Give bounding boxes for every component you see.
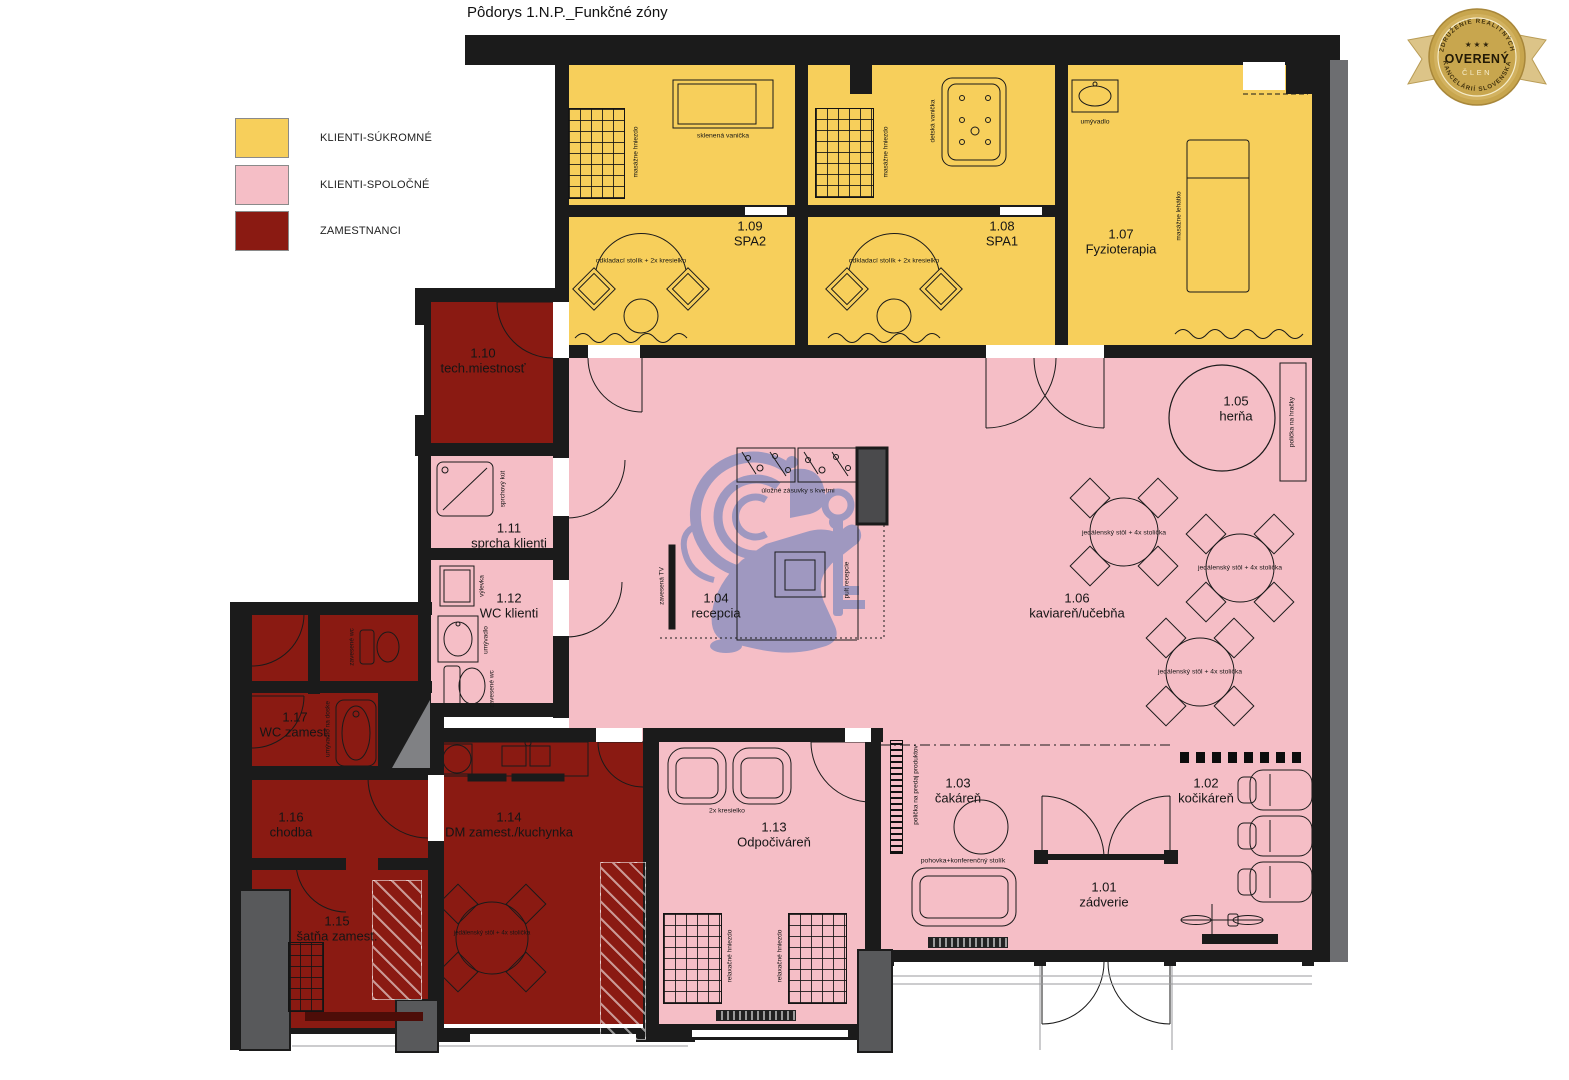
room-label-odpocivaren: 1.13Odpočiváreň — [737, 821, 811, 850]
room-label-wc-zamest: 1.17WC zamest. — [260, 711, 331, 740]
floor-plan-page: Pôdorys 1.N.P._Funkčné zóny KLIENTI-SÚKR… — [0, 0, 1569, 1080]
annotation-pult-recepcie: pult recepcie — [844, 562, 851, 599]
room-name: herňa — [1219, 409, 1252, 424]
room-number: 1.04 — [691, 592, 740, 607]
wardrobe-kitchen — [600, 862, 646, 1040]
relax-nest-grid-1 — [663, 913, 722, 1004]
annotation-zavesene-wc-klienti: zavesené wc — [489, 670, 496, 708]
room-label-herna: 1.05herňa — [1219, 395, 1252, 424]
wardrobe-satna — [372, 880, 422, 1000]
room-name: SPA2 — [734, 234, 766, 249]
annotation-relaxacne-hniezdo-2: relaxačné hniezdo — [777, 930, 784, 983]
room-number: 1.07 — [1086, 228, 1157, 243]
annotation-2x-kresielko: 2x kresielko — [709, 808, 745, 815]
product-shelf-strip — [890, 740, 903, 854]
verified-member-badge: ZDRUŽENIE REALITNÝCH KANCELÁRIÍ SLOVENSK… — [1402, 2, 1552, 114]
room-number: 1.13 — [737, 821, 811, 836]
room-label-sprcha: 1.11sprcha klienti — [471, 522, 547, 551]
room-name: SPA1 — [986, 234, 1018, 249]
room-label-kaviaren: 1.06kaviareň/učebňa — [1029, 592, 1124, 621]
badge-stars: ★ ★ ★ — [1465, 40, 1490, 49]
room-number: 1.02 — [1178, 777, 1234, 792]
room-label-satna: 1.15šatňa zamest. — [297, 915, 378, 944]
room-label-spa1: 1.08SPA1 — [986, 220, 1018, 249]
room-name: kaviareň/učebňa — [1029, 606, 1124, 621]
room-name: kočikáreň — [1178, 791, 1234, 806]
room-number: 1.08 — [986, 220, 1018, 235]
annotation-odkladaci-stolik-spa2: odkladací stolík + 2x kresielko — [596, 258, 686, 265]
badge-subtitle: ČLEN — [1462, 68, 1492, 77]
annotation-umyvadlo-wc: umývadlo — [483, 626, 490, 654]
kocikaren-mat — [1202, 934, 1278, 944]
room-name: čakáreň — [935, 791, 981, 806]
room-name: WC zamest. — [260, 725, 331, 740]
room-name: Odpočiváreň — [737, 835, 811, 850]
satna-bench — [305, 1012, 423, 1021]
annotation-vylevka: výlevka — [479, 575, 486, 597]
relax-nest-grid-2 — [788, 913, 847, 1004]
room-name: DM zamest./kuchynka — [445, 825, 573, 840]
annotation-odkladaci-stolik-spa1: odkladací stolík + 2x kresielko — [849, 258, 939, 265]
annotation-masazne-hniezdo-spa2: masážne hniezdo — [633, 127, 640, 178]
room-number: 1.06 — [1029, 592, 1124, 607]
room-label-kocikaren: 1.02kočikáreň — [1178, 777, 1234, 806]
annotation-ulozne-zasuvky: úložné zásuvky s kvetmi — [761, 488, 834, 495]
room-label-spa2: 1.09SPA2 — [734, 220, 766, 249]
room-name: recepcia — [691, 606, 740, 621]
annotation-umyvadlo-fyzio: umývadlo — [1080, 119, 1109, 126]
annotation-policka-na-hracky: polička na hračky — [1289, 397, 1296, 447]
annotation-jedalensky-stol-2: jedálenský stôl + 4x stolička — [1198, 565, 1282, 572]
room-name: šatňa zamest. — [297, 929, 378, 944]
badge-title: OVERENÝ — [1445, 51, 1510, 66]
room-name: chodba — [270, 825, 313, 840]
kocikaren-dash-wall — [1180, 752, 1308, 763]
room-name: WC klienti — [480, 606, 539, 621]
annotation-detska-vanicka: detská vanička — [930, 100, 937, 143]
locker-grid — [288, 942, 324, 1012]
room-label-cakaren: 1.03čakáreň — [935, 777, 981, 806]
room-label-chodba: 1.16chodba — [270, 811, 313, 840]
annotation-sprchovy-kut: sprchový kút — [500, 471, 507, 508]
room-name: Fyzioterapia — [1086, 242, 1157, 257]
room-name: tech.miestnosť — [440, 361, 525, 376]
annotation-sklenena-vanicka: sklenená vanička — [697, 133, 749, 140]
floor-plan-drawing — [0, 0, 1569, 1080]
room-number: 1.12 — [480, 592, 539, 607]
room-label-tech: 1.10tech.miestnosť — [440, 347, 525, 376]
annotation-jedalensky-stol-3: jedálenský stôl + 4x stolička — [1158, 669, 1242, 676]
room-number: 1.14 — [445, 811, 573, 826]
heater-odpocivaren — [716, 1010, 796, 1021]
room-number: 1.10 — [440, 347, 525, 362]
massage-nest-grid-spa1 — [815, 108, 874, 198]
annotation-jedalensky-stol-4: jedálenský stôl + 4x stolička — [454, 930, 531, 937]
room-number: 1.15 — [297, 915, 378, 930]
room-label-wc-klienti: 1.12WC klienti — [480, 592, 539, 621]
room-label-kuchynka: 1.14DM zamest./kuchynka — [445, 811, 573, 840]
room-number: 1.16 — [270, 811, 313, 826]
massage-nest-grid-spa2 — [568, 108, 625, 199]
annotation-masazne-lehatko: masážne lehátko — [1176, 191, 1183, 240]
annotation-zavesena-tv: zavesená TV — [659, 567, 666, 605]
annotation-umyvadlo-na-doske: umývadlo na doske — [325, 701, 332, 757]
room-number: 1.11 — [471, 522, 547, 537]
room-label-zadverie: 1.01zádverie — [1079, 881, 1128, 910]
annotation-pohovka: pohovka+konferenčný stolík — [921, 858, 1005, 865]
room-number: 1.05 — [1219, 395, 1252, 410]
annotation-jedalensky-stol-1: jedálenský stôl + 4x stolička — [1082, 530, 1166, 537]
room-label-fyzioterapia: 1.07Fyzioterapia — [1086, 228, 1157, 257]
room-number: 1.17 — [260, 711, 331, 726]
room-label-recepcia: 1.04recepcia — [691, 592, 740, 621]
room-name: sprcha klienti — [471, 536, 547, 551]
annotation-relaxacne-hniezdo-1: relaxačné hniezdo — [727, 930, 734, 983]
room-number: 1.09 — [734, 220, 766, 235]
room-name: zádverie — [1079, 895, 1128, 910]
annotation-policka-predaj: polička na predaj produktov — [913, 745, 920, 825]
room-number: 1.01 — [1079, 881, 1128, 896]
annotation-zavesene-wc-zamest: zavesené wc — [349, 628, 356, 666]
heater-cakaren — [928, 937, 1008, 948]
room-number: 1.03 — [935, 777, 981, 792]
annotation-masazne-hniezdo-spa1: masážne hniezdo — [883, 127, 890, 178]
